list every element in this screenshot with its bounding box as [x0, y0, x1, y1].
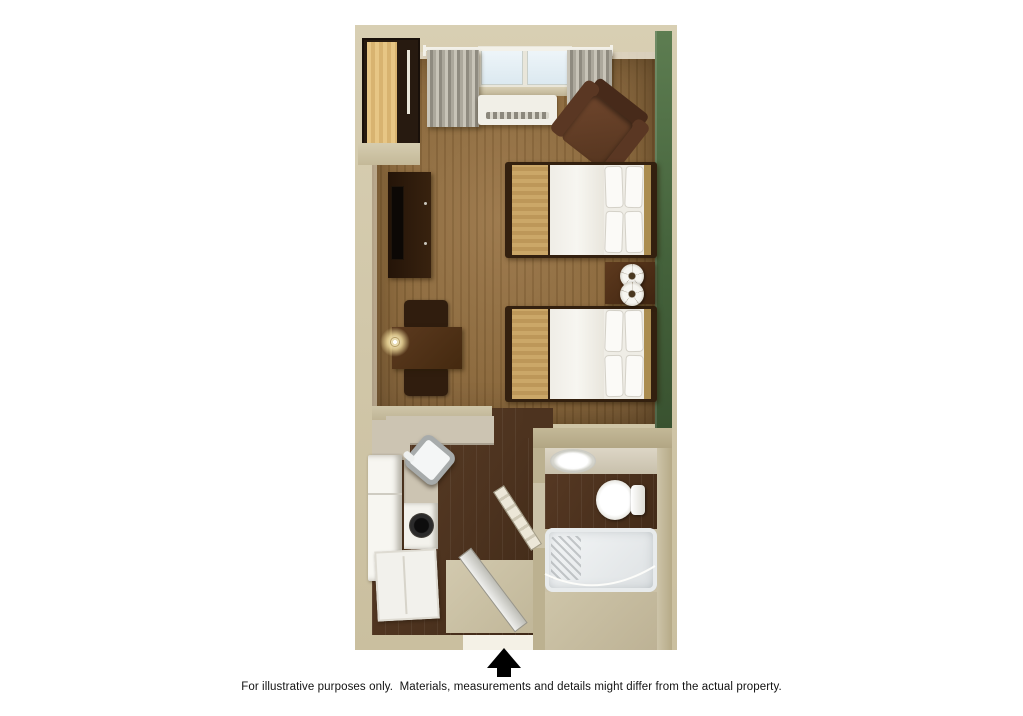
bed-2-pillows [604, 309, 644, 399]
pillow [604, 355, 623, 398]
bathroom-sink [550, 449, 596, 473]
refrigerator-door-seam [368, 493, 402, 495]
dining-chair-bottom [404, 366, 448, 396]
pillow [624, 355, 643, 398]
bathroom-tile-floor [545, 592, 657, 650]
entry-arrow-stem [497, 667, 511, 677]
bathroom-wall-top [533, 428, 672, 448]
bed-2-headboard-strip [644, 309, 651, 399]
tv [391, 186, 404, 260]
base-cabinet [374, 548, 440, 621]
stove-burner [409, 513, 434, 538]
curtain-rod-end-left [423, 45, 426, 56]
dresser-knob [424, 242, 427, 245]
closet-rod [407, 50, 410, 114]
cabinet-door-seam [402, 556, 407, 614]
closet-nook [362, 38, 420, 150]
floor-plan [355, 25, 677, 650]
curtain-left [427, 50, 479, 127]
pillow [624, 166, 643, 209]
disclaimer-caption: For illustrative purposes only. Material… [0, 681, 1023, 693]
entry-arrow-icon [487, 648, 521, 678]
entry-arrow-head [487, 648, 521, 668]
bed-2 [505, 306, 657, 402]
page: For illustrative purposes only. Material… [0, 0, 1023, 716]
bathroom-wall-left-upper [533, 448, 545, 483]
pillow [604, 166, 623, 209]
pillow [604, 310, 623, 353]
bed-1-headboard-strip [644, 165, 651, 255]
pillow [624, 310, 643, 353]
bed-1-duvet [550, 165, 604, 255]
table-lamp [390, 337, 400, 347]
bed-2-duvet [550, 309, 604, 399]
bed-1-runner [512, 165, 548, 255]
green-accent-wall [655, 31, 672, 430]
bed-1 [505, 162, 657, 258]
closet-shelving [367, 42, 397, 145]
pillow [624, 211, 643, 254]
bed-1-pillows [604, 165, 644, 255]
window-pane-left [481, 49, 523, 85]
toilet-tank [631, 485, 645, 515]
closet-wall-stub [358, 143, 420, 165]
ac-unit [478, 95, 557, 125]
pillow [604, 211, 623, 254]
toilet-bowl [596, 480, 634, 520]
nightstand-lamp-2 [620, 282, 644, 306]
shower-curtain-line [541, 560, 661, 594]
stove-cooktop [404, 503, 438, 549]
window-pane-right [527, 49, 569, 85]
dresser-knob [424, 202, 427, 205]
tv-dresser [388, 172, 431, 278]
ac-vents [486, 112, 549, 119]
bed-2-runner [512, 309, 548, 399]
bathroom-wall-right [657, 448, 672, 650]
dining-chair-top [404, 300, 448, 330]
bathroom [533, 428, 672, 650]
window [478, 46, 572, 88]
